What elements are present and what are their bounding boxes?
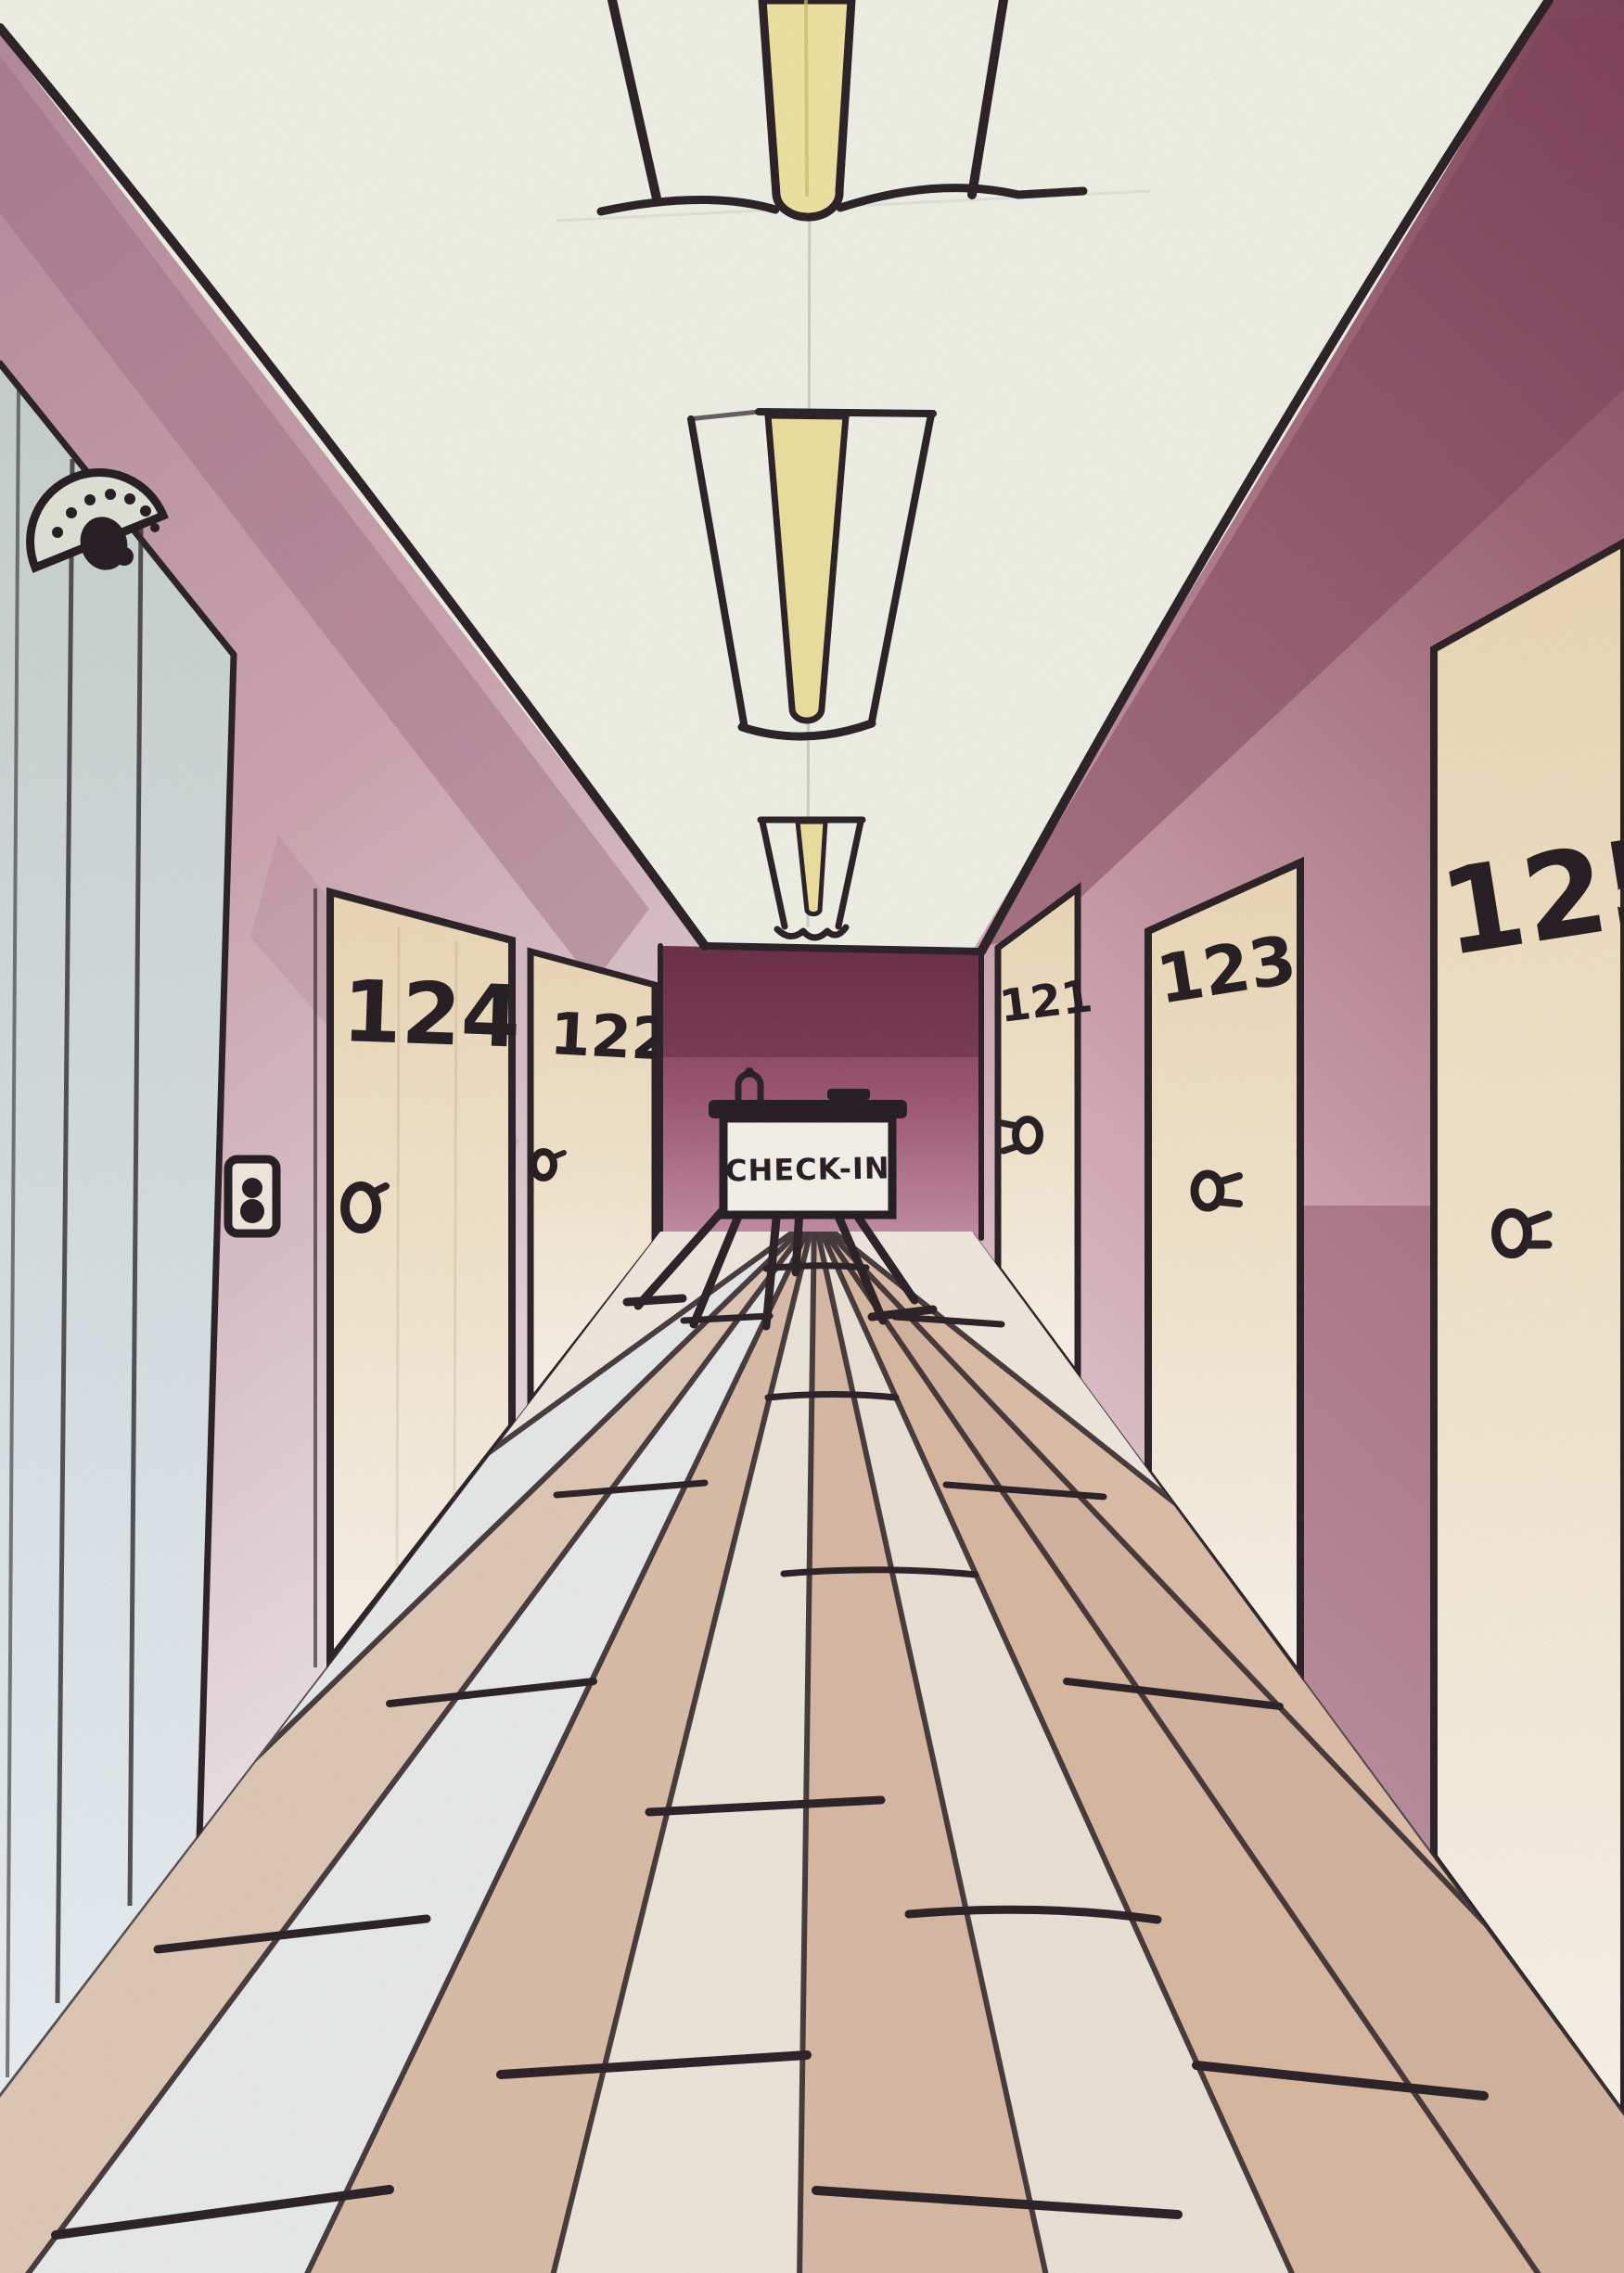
grain-overlay — [0, 0, 1624, 2273]
hallway-drawing: 124 122 121 123 — [0, 0, 1624, 2273]
